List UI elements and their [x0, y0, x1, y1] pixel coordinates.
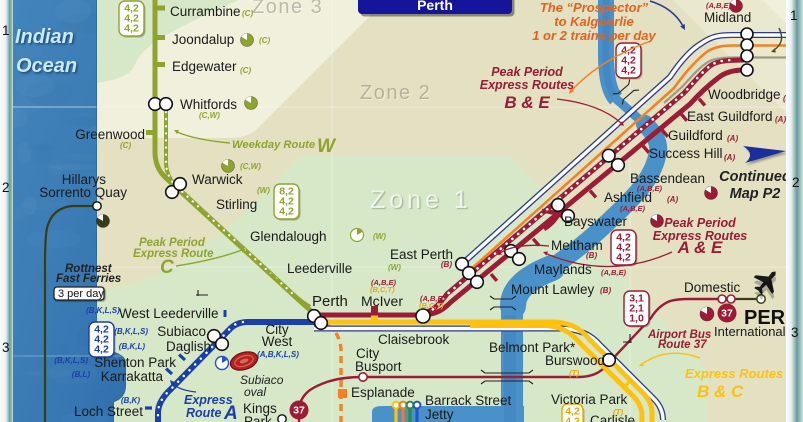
- svg-text:Leederville: Leederville: [287, 261, 352, 276]
- svg-text:(A,B,E): (A,B,E): [706, 1, 732, 10]
- svg-text:A & E: A & E: [677, 238, 723, 257]
- svg-text:to Kalgoorlie: to Kalgoorlie: [554, 14, 633, 29]
- svg-text:Shenton Park: Shenton Park: [94, 355, 176, 370]
- svg-text:1: 1: [790, 8, 798, 23]
- svg-text:(C,W): (C,W): [199, 111, 220, 120]
- svg-text:(A): (A): [724, 153, 735, 162]
- svg-text:McIver: McIver: [361, 293, 403, 309]
- svg-text:Joondalup: Joondalup: [172, 32, 234, 47]
- svg-text:Claisebrook: Claisebrook: [378, 332, 450, 347]
- svg-text:Continued: Continued: [719, 169, 792, 185]
- svg-text:(W): (W): [257, 186, 270, 195]
- svg-text:2: 2: [2, 180, 10, 195]
- svg-text:Busport: Busport: [355, 359, 402, 374]
- svg-text:Burswood: Burswood: [545, 353, 605, 368]
- svg-text:East Guildford: East Guildford: [687, 109, 773, 124]
- svg-text:Express Routes: Express Routes: [685, 366, 783, 381]
- svg-text:Stirling: Stirling: [216, 197, 257, 212]
- svg-text:(C): (C): [120, 141, 131, 150]
- svg-text:(B): (B): [600, 286, 611, 295]
- svg-text:(A): (A): [667, 195, 678, 204]
- svg-text:Currambine: Currambine: [170, 4, 241, 19]
- svg-text:(B): (B): [441, 260, 452, 269]
- svg-text:(B,C,T): (B,C,T): [370, 285, 395, 294]
- svg-text:B & E: B & E: [504, 93, 550, 112]
- svg-text:W: W: [317, 136, 337, 157]
- svg-text:Zone 3: Zone 3: [252, 0, 323, 18]
- svg-text:The “Prospector”: The “Prospector”: [540, 0, 649, 15]
- svg-text:Peak Period: Peak Period: [664, 216, 736, 230]
- svg-text:Warwick: Warwick: [192, 172, 243, 187]
- svg-text:Greenwood: Greenwood: [75, 127, 145, 142]
- svg-text:Map P2: Map P2: [730, 186, 781, 202]
- svg-text:Success Hill: Success Hill: [649, 146, 723, 161]
- svg-text:(A): (A): [775, 115, 786, 124]
- svg-text:4,2: 4,2: [124, 23, 139, 35]
- svg-text:(A,B,E): (A,B,E): [620, 204, 646, 213]
- svg-text:3: 3: [2, 340, 10, 355]
- svg-text:4,2: 4,2: [616, 252, 631, 264]
- svg-text:(A,B,E): (A,B,E): [601, 268, 627, 277]
- svg-text:Midland: Midland: [704, 10, 751, 25]
- svg-text:Karrakatta: Karrakatta: [101, 369, 164, 384]
- svg-text:Bayswater: Bayswater: [564, 214, 628, 229]
- svg-text:(A): (A): [727, 134, 738, 143]
- svg-text:Victoria Park: Victoria Park: [551, 392, 628, 407]
- svg-text:Peak Period: Peak Period: [491, 65, 563, 79]
- svg-text:Sorrento Quay: Sorrento Quay: [39, 185, 127, 200]
- svg-text:Domestic: Domestic: [684, 280, 741, 295]
- svg-text:Express Routes: Express Routes: [480, 78, 575, 92]
- svg-text:Edgewater: Edgewater: [172, 59, 237, 74]
- svg-text:Weekday Route: Weekday Route: [232, 139, 315, 151]
- svg-text:Ocean: Ocean: [16, 55, 77, 77]
- svg-text:Zone 2: Zone 2: [360, 82, 431, 104]
- svg-text:(W): (W): [388, 263, 401, 272]
- svg-text:(B,K,L): (B,K,L): [119, 342, 146, 351]
- svg-text:4,2: 4,2: [621, 65, 636, 77]
- svg-text:Indian: Indian: [15, 26, 74, 48]
- svg-text:Jetty: Jetty: [425, 407, 454, 422]
- svg-text:International: International: [714, 324, 786, 339]
- svg-text:Barrack Street: Barrack Street: [425, 393, 512, 408]
- svg-text:Route 37: Route 37: [658, 339, 707, 351]
- svg-text:37: 37: [721, 308, 733, 320]
- svg-text:(A,B,E): (A,B,E): [637, 184, 663, 193]
- svg-text:1: 1: [2, 23, 10, 38]
- svg-text:(B,K,L,S): (B,K,L,S): [114, 327, 148, 336]
- svg-text:(B,C,T): (B,C,T): [419, 301, 444, 310]
- svg-text:4,2: 4,2: [565, 416, 580, 422]
- svg-text:1,0: 1,0: [629, 313, 644, 325]
- svg-text:C: C: [160, 257, 174, 278]
- svg-text:Route: Route: [186, 406, 221, 420]
- svg-text:Subiaco: Subiaco: [157, 324, 206, 339]
- svg-text:4,2: 4,2: [94, 344, 109, 356]
- svg-text:oval: oval: [244, 385, 266, 399]
- svg-text:West: West: [262, 334, 293, 349]
- svg-text:(B): (B): [586, 251, 597, 260]
- svg-text:Park: Park: [244, 414, 272, 422]
- svg-text:Woodbridge: Woodbridge: [708, 87, 781, 102]
- svg-text:(C): (C): [259, 36, 270, 45]
- svg-text:Daglish: Daglish: [166, 339, 211, 354]
- svg-text:Perth: Perth: [312, 293, 348, 310]
- svg-text:4,2: 4,2: [279, 206, 294, 218]
- svg-text:Fast Ferries: Fast Ferries: [56, 273, 121, 285]
- svg-text:Glendalough: Glendalough: [250, 229, 327, 244]
- svg-text:2: 2: [792, 175, 800, 190]
- svg-text:(B,K,L,S): (B,K,L,S): [54, 356, 88, 365]
- svg-text:(A,B,K,L,S): (A,B,K,L,S): [257, 350, 299, 359]
- svg-text:Perth: Perth: [417, 0, 453, 13]
- svg-text:(B,L): (B,L): [72, 370, 91, 379]
- svg-text:Zone 1: Zone 1: [370, 186, 472, 214]
- svg-text:Maylands: Maylands: [534, 262, 592, 277]
- svg-text:3 per day: 3 per day: [58, 288, 104, 300]
- svg-text:(W): (W): [373, 232, 386, 241]
- svg-text:1 or 2 trains per day: 1 or 2 trains per day: [532, 28, 656, 43]
- svg-text:(T): (T): [569, 369, 580, 378]
- svg-text:(B,K): (B,K): [121, 396, 140, 405]
- svg-text:B & C: B & C: [697, 382, 744, 401]
- svg-text:Mount Lawley: Mount Lawley: [511, 282, 595, 297]
- svg-text:(C,W): (C,W): [240, 162, 261, 171]
- svg-text:A: A: [223, 403, 238, 422]
- svg-text:West Leederville: West Leederville: [119, 306, 219, 321]
- svg-text:(B,K,L,S): (B,K,L,S): [86, 306, 120, 315]
- svg-text:37: 37: [293, 405, 305, 417]
- svg-text:(C): (C): [240, 66, 251, 75]
- svg-text:Whitfords: Whitfords: [180, 97, 237, 112]
- svg-text:Carlisle: Carlisle: [590, 413, 635, 422]
- svg-text:Loch Street: Loch Street: [74, 404, 143, 419]
- svg-text:(C): (C): [242, 9, 253, 18]
- svg-text:3: 3: [791, 325, 799, 340]
- svg-text:Guildford: Guildford: [668, 128, 723, 143]
- svg-text:Esplanade: Esplanade: [351, 385, 415, 400]
